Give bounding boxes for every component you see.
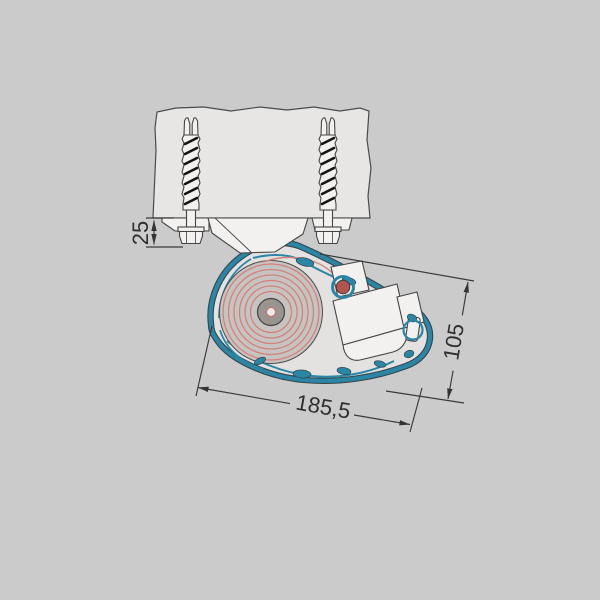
pivot-roller	[336, 280, 350, 294]
diagram-canvas: 25 105 185,5	[0, 0, 600, 600]
roll-axle	[266, 307, 275, 316]
diagram-stage: 25 105 185,5	[0, 0, 600, 600]
dim-label-25: 25	[128, 221, 153, 245]
